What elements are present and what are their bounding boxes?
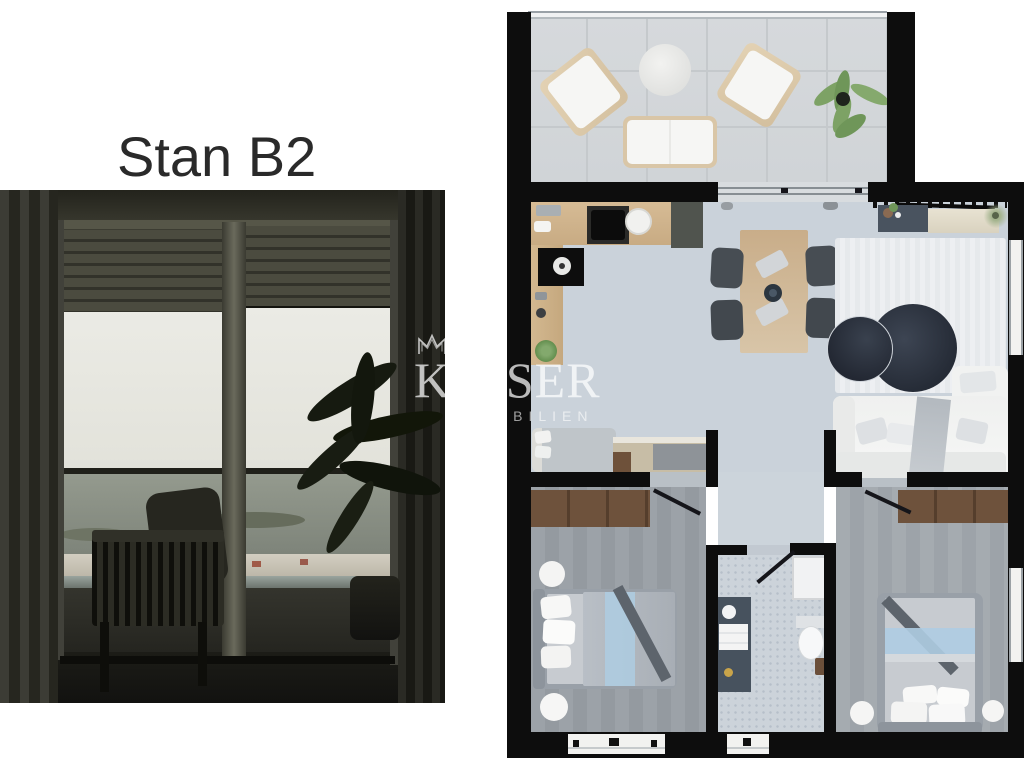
- town-roof: [252, 561, 261, 567]
- kitchen-stove-top: [591, 210, 625, 240]
- wall-hall-right: [824, 430, 836, 487]
- sliding-door-rail: [718, 193, 868, 195]
- curtain-right: [398, 190, 445, 703]
- bed-pillow: [542, 619, 575, 645]
- entry-dresser-side: [613, 452, 631, 472]
- sliding-door-sill: [718, 182, 868, 202]
- wall-bath-right: [824, 545, 836, 758]
- round-rug: [540, 693, 568, 721]
- sheer-curtain-left: [0, 190, 58, 703]
- bed-pillow: [540, 594, 572, 619]
- round-rug: [850, 701, 874, 725]
- vanity-sink: [722, 605, 736, 619]
- wall-hall-left: [706, 430, 718, 487]
- window-tick: [573, 740, 579, 747]
- kitchen-tray: [536, 205, 561, 216]
- corner-palm-center: [992, 212, 999, 219]
- doorway-left-bedroom: [650, 472, 707, 487]
- bed-pillow: [541, 645, 572, 668]
- terrace-sofa-cushions: [627, 120, 713, 164]
- daybed-pillow: [534, 430, 552, 444]
- coffee-table-small: [827, 316, 893, 382]
- wall-bath-stub-right: [790, 543, 836, 555]
- terrace-round-table: [639, 44, 691, 96]
- wall-terrace-right: [887, 12, 915, 184]
- window-tick: [609, 738, 619, 746]
- round-rug: [539, 561, 565, 587]
- town-roof: [300, 559, 308, 565]
- wall-bath-left: [706, 545, 718, 758]
- window-bedroom-right: [1009, 568, 1023, 662]
- kitchen-tall-cabinet: [671, 202, 703, 248]
- wall-bath-stub-left: [706, 545, 747, 555]
- sliding-door-rail: [718, 187, 868, 189]
- blinds-left: [60, 230, 224, 312]
- decor-vase: [721, 202, 733, 210]
- dining-chair: [805, 245, 839, 287]
- wall-bedrooms-top-left: [531, 472, 650, 487]
- kitchen-plant: [535, 340, 557, 362]
- plant-pot: [350, 576, 400, 640]
- vanity-towels: [719, 624, 748, 650]
- real-estate-listing-image: Stan B2 KAISER IMMOBILIEN: [0, 0, 1024, 768]
- console-dish: [895, 212, 901, 218]
- bed-sheet-fold-right: [885, 654, 975, 662]
- door-mullion: [222, 222, 246, 660]
- armchair-slatted-frame: [92, 536, 224, 626]
- armchair-leg: [198, 622, 207, 686]
- window-tick: [651, 740, 657, 747]
- sliding-door-handle: [855, 188, 862, 193]
- chaise-pillow: [959, 370, 997, 393]
- apartment-floorplan: [505, 0, 1024, 768]
- bed-blue-band-right: [885, 628, 975, 654]
- wardrobe-left: [531, 490, 650, 527]
- toilet-bowl: [798, 626, 824, 660]
- apartment-title: Stan B2: [117, 124, 316, 189]
- dining-chair: [710, 299, 743, 340]
- blinds-right: [240, 226, 395, 306]
- door-track: [60, 656, 395, 664]
- sliding-door-handle: [781, 188, 788, 193]
- kitchen-kettle: [534, 221, 551, 232]
- daybed-pillow: [535, 445, 552, 458]
- round-rug: [982, 700, 1004, 722]
- wardrobe-right: [898, 490, 1008, 523]
- window-living-right: [1009, 240, 1023, 355]
- kitchen-sink: [625, 208, 652, 235]
- kitchen-board: [535, 292, 547, 300]
- dining-chair: [710, 247, 744, 289]
- armchair-leg: [100, 622, 109, 692]
- armchair-armrest: [92, 530, 224, 542]
- table-bowl-inner: [769, 289, 777, 297]
- kitchen-pot-lid: [559, 263, 565, 269]
- terrace-glass-railing: [528, 11, 887, 19]
- entry-dresser-top: [653, 444, 711, 470]
- doorway-bathroom: [747, 545, 790, 555]
- kitchen-bowl: [536, 308, 546, 318]
- wall-bedrooms-top-right-b: [907, 472, 1008, 487]
- wall-left: [507, 12, 531, 758]
- wall-terrace-bottom-left: [531, 182, 718, 202]
- window-tick: [743, 738, 751, 746]
- apartment-interior-photo: [0, 190, 445, 703]
- wall-terrace-bottom-right: [868, 182, 1024, 202]
- decor-vase: [823, 201, 838, 210]
- vanity-gold-accent: [724, 668, 733, 677]
- console-plant: [889, 203, 898, 212]
- terrace-plant-pot: [836, 92, 850, 106]
